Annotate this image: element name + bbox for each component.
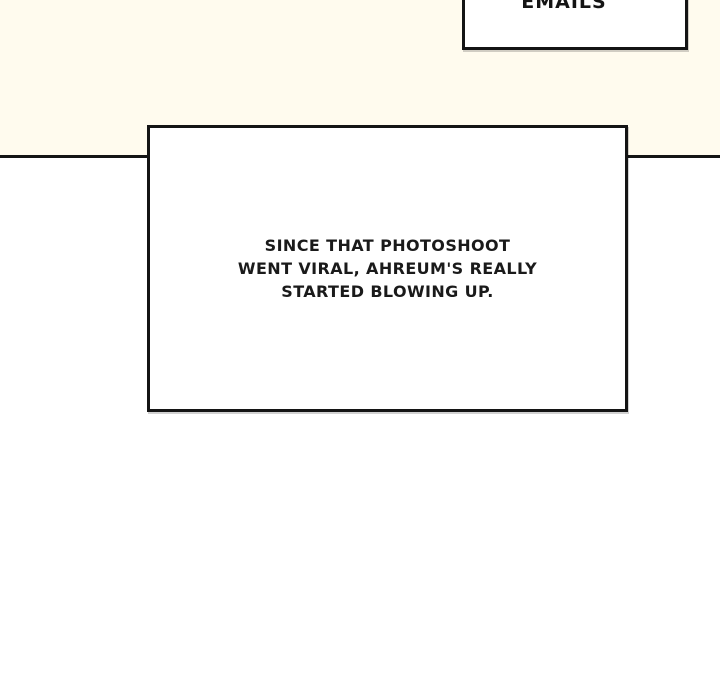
caption-box-partial: EMAILS — [462, 0, 688, 50]
caption-line-2: WENT VIRAL, AHREUM'S REALLY — [238, 257, 537, 280]
caption-line-3: STARTED BLOWING UP. — [238, 280, 537, 303]
comic-page: EMAILS SINCE THAT PHOTOSHOOT WENT VIRAL,… — [0, 0, 720, 700]
caption-line-1: SINCE THAT PHOTOSHOOT — [238, 234, 537, 257]
caption-text-main: SINCE THAT PHOTOSHOOT WENT VIRAL, AHREUM… — [238, 234, 537, 303]
caption-box-main: SINCE THAT PHOTOSHOOT WENT VIRAL, AHREUM… — [147, 125, 628, 412]
caption-text-partial: EMAILS — [465, 0, 663, 13]
